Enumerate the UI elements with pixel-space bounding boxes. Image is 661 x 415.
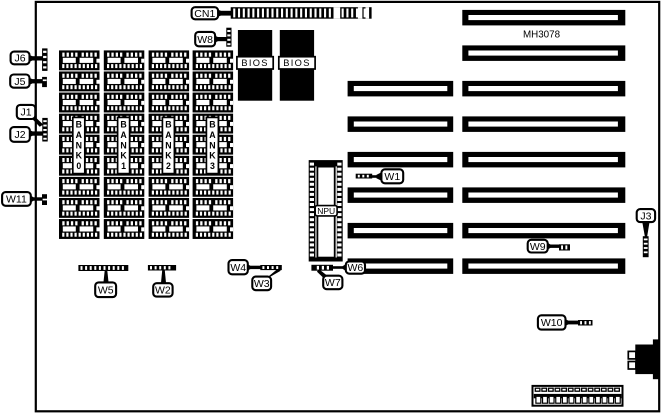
- svg-text:W5: W5: [98, 284, 114, 296]
- svg-text:BIOS: BIOS: [241, 58, 268, 68]
- svg-text:K: K: [209, 151, 216, 161]
- svg-text:MH3078: MH3078: [523, 29, 561, 40]
- svg-text:N: N: [165, 140, 171, 150]
- svg-text:2: 2: [166, 161, 171, 171]
- svg-text:B: B: [76, 120, 82, 130]
- svg-text:W7: W7: [325, 277, 341, 289]
- svg-text:K: K: [165, 151, 172, 161]
- svg-text:B: B: [120, 120, 126, 130]
- svg-text:B: B: [209, 120, 215, 130]
- svg-text:J2: J2: [15, 129, 26, 141]
- svg-text:BIOS: BIOS: [283, 58, 310, 68]
- svg-text:K: K: [120, 151, 127, 161]
- svg-text:1: 1: [121, 161, 126, 171]
- svg-text:N: N: [76, 140, 82, 150]
- svg-text:W8: W8: [197, 34, 213, 46]
- svg-text:N: N: [120, 140, 126, 150]
- svg-text:J1: J1: [20, 107, 31, 119]
- svg-text:W10: W10: [541, 317, 563, 329]
- svg-text:J3: J3: [640, 210, 651, 222]
- svg-text:A: A: [165, 130, 172, 140]
- svg-text:K: K: [76, 151, 83, 161]
- svg-text:3: 3: [210, 161, 215, 171]
- svg-text:CN1: CN1: [194, 8, 215, 20]
- svg-text:A: A: [120, 130, 127, 140]
- svg-text:W6: W6: [348, 262, 364, 274]
- svg-text:J5: J5: [14, 76, 25, 88]
- svg-text:A: A: [209, 130, 216, 140]
- svg-text:J6: J6: [15, 53, 26, 65]
- svg-text:W4: W4: [230, 262, 246, 274]
- svg-text:W1: W1: [384, 171, 400, 183]
- svg-text:0: 0: [76, 161, 81, 171]
- svg-text:W2: W2: [155, 285, 171, 297]
- svg-text:B: B: [165, 120, 171, 130]
- svg-text:NPU: NPU: [317, 206, 335, 216]
- svg-text:W3: W3: [254, 278, 270, 290]
- svg-text:W9: W9: [530, 241, 546, 253]
- svg-text:W11: W11: [6, 194, 27, 206]
- svg-text:N: N: [209, 140, 215, 150]
- svg-text:A: A: [76, 130, 83, 140]
